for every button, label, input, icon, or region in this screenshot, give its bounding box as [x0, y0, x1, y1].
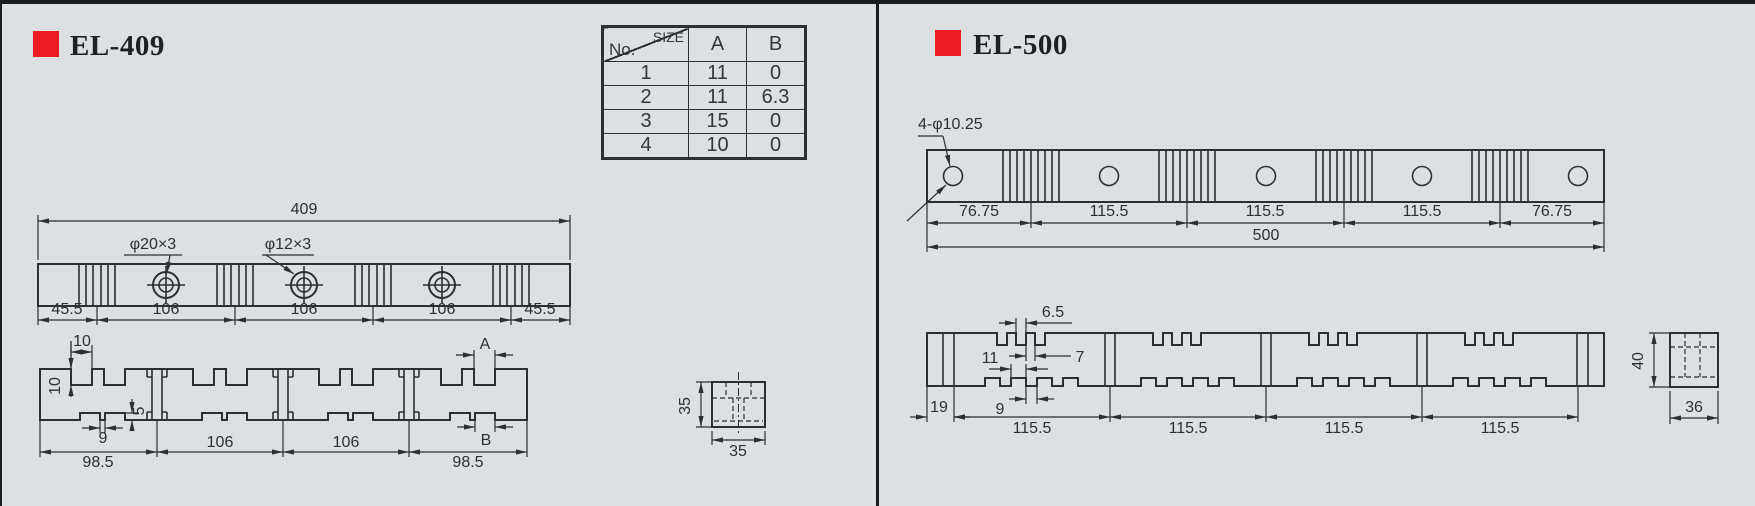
counterbore-hole — [423, 266, 461, 304]
dim-label: 106 — [429, 301, 456, 318]
dim-label-section-height: 40 — [1630, 352, 1647, 370]
dim-label: 106 — [291, 301, 318, 318]
dim-label-notch-width: 10 — [73, 333, 91, 350]
el500-side-segment-dims: 115.5 115.5 115.5 115.5 — [927, 386, 1578, 437]
dim-label-bottom-gap: 9 — [99, 430, 108, 447]
dim-label: 115.5 — [1325, 420, 1364, 437]
dim-label: 115.5 — [1246, 203, 1285, 220]
dim-label-bottom-tooth: 9 — [996, 401, 1005, 418]
dim-label: 115.5 — [1403, 203, 1442, 220]
el500-side-view — [927, 333, 1604, 386]
dim-label-section-height: 35 — [677, 397, 694, 415]
callout-small-holes: φ12×3 — [265, 236, 312, 253]
dim-label-section-width: 36 — [1685, 399, 1703, 416]
dim-label: 115.5 — [1169, 420, 1208, 437]
dim-label: 76.75 — [959, 203, 999, 220]
el500-drawing: 4-φ10.25 76.75 115.5 115.5 115.5 — [877, 0, 1755, 506]
dim-label-section-width: 35 — [729, 443, 747, 460]
hole — [1257, 167, 1276, 186]
el409-drawing: 409 φ20×3 φ12×3 — [0, 0, 877, 506]
dim-label: 115.5 — [1090, 203, 1129, 220]
el409-section-view: 35 35 — [677, 372, 765, 460]
callout-holes: 4-φ10.25 — [918, 116, 983, 133]
datasheet-page: EL-409 EL-500 SIZE No. A B 1 11 0 2 11 6… — [0, 0, 1755, 506]
dim-label-overall: 409 — [291, 201, 318, 218]
callout-large-holes: φ20×3 — [130, 236, 177, 253]
dim-label: 115.5 — [1013, 420, 1052, 437]
el500-side-dims: 6.5 7 11 9 19 — [910, 304, 1085, 418]
dim-label: 76.75 — [1532, 203, 1572, 220]
dim-label-end: 19 — [930, 399, 948, 416]
el409-side-dims: 10 10 5 9 A B — [47, 333, 513, 449]
dim-label-bottom-notch: 11 — [982, 350, 999, 367]
dim-label-bottom-notch-depth: 5 — [131, 406, 148, 415]
el409-side-view — [40, 369, 527, 420]
el409-top-segment-dims: 45.5 106 106 106 45.5 — [38, 301, 570, 325]
dim-label: 106 — [333, 434, 360, 451]
dim-label: 115.5 — [1481, 420, 1520, 437]
el500-top-view — [927, 150, 1604, 202]
dim-label: 98.5 — [82, 454, 113, 471]
el500-top-dims: 76.75 115.5 115.5 115.5 76.75 500 — [927, 202, 1604, 252]
el409-top-view — [38, 264, 570, 306]
counterbore-hole — [147, 266, 185, 304]
ref-label-b: B — [481, 432, 492, 449]
ref-label-a: A — [480, 336, 491, 353]
dim-label: 106 — [207, 434, 234, 451]
hole — [944, 167, 963, 186]
dim-label-notch-depth: 10 — [47, 377, 64, 395]
dim-label: 45.5 — [51, 301, 82, 318]
dim-label-overall: 500 — [1253, 227, 1280, 244]
dim-label: 98.5 — [452, 454, 483, 471]
el409-hole-callouts: φ20×3 φ12×3 — [124, 236, 314, 274]
dim-label: 106 — [153, 301, 180, 318]
hole — [1413, 167, 1432, 186]
hole — [1100, 167, 1119, 186]
el500-section-view: 40 36 — [1630, 333, 1718, 424]
dim-label-top-tooth: 7 — [1076, 349, 1085, 366]
dim-label-top-notch: 6.5 — [1042, 304, 1064, 321]
hole — [1569, 167, 1588, 186]
dim-label: 45.5 — [524, 301, 555, 318]
